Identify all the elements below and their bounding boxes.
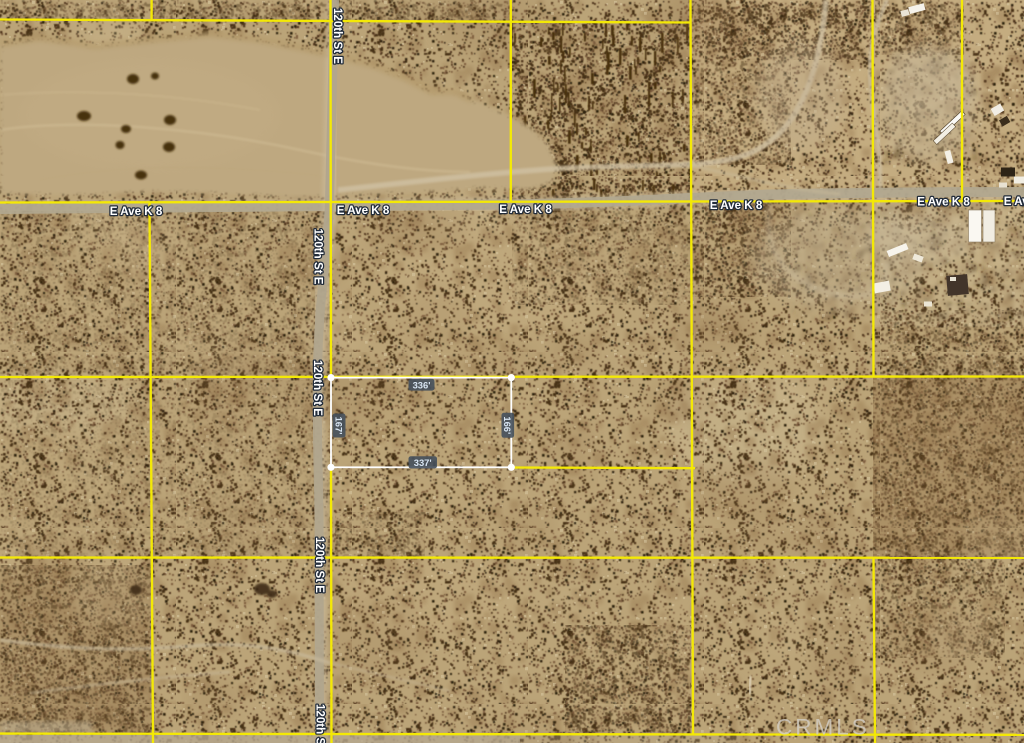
svg-text:166': 166' [502,416,513,434]
svg-text:E Ave K 8: E Ave K 8 [917,196,970,209]
svg-text:CRMLS: CRMLS [776,715,870,740]
svg-text:337': 337' [414,457,432,468]
svg-text:E Ave K 8: E Ave K 8 [110,205,163,218]
svg-text:167': 167' [333,417,344,435]
svg-text:E Ave K 8: E Ave K 8 [499,203,552,216]
svg-text:E Ave K 8: E Ave K 8 [1004,195,1024,208]
svg-text:120th St E: 120th St E [331,8,344,64]
svg-text:120th St E: 120th St E [313,537,326,593]
svg-text:E Ave K 8: E Ave K 8 [337,204,390,217]
svg-text:336': 336' [413,379,431,390]
svg-text:120th St E: 120th St E [314,704,327,743]
svg-text:E Ave K 8: E Ave K 8 [710,199,763,212]
svg-text:120th St E: 120th St E [311,360,324,416]
svg-text:120th St E: 120th St E [312,228,325,284]
